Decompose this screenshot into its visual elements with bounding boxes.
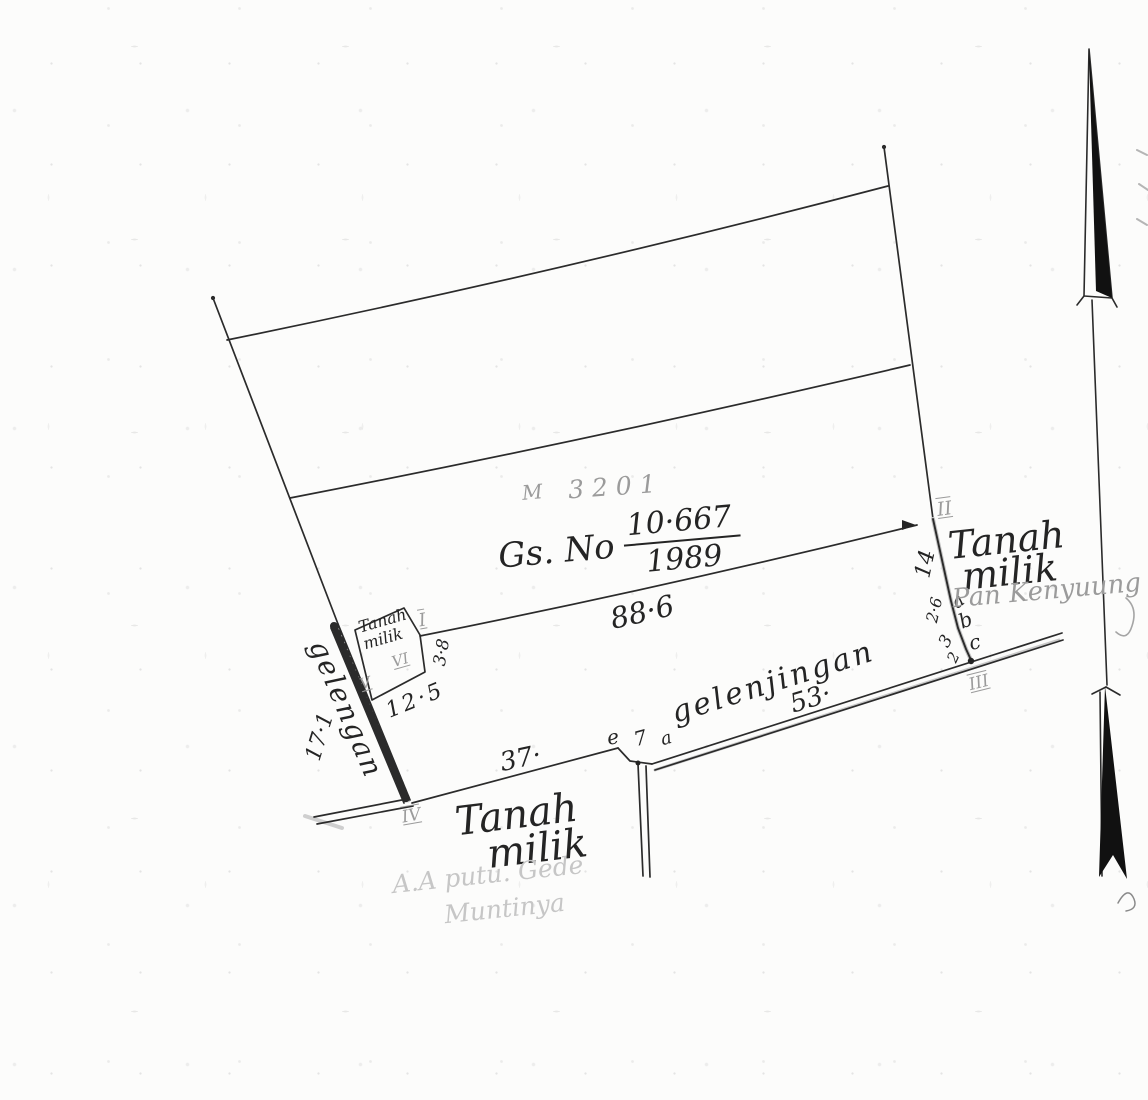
notch-line xyxy=(618,748,652,764)
station-mark-ii: II xyxy=(936,499,954,520)
pencil-flourish-tail xyxy=(1116,598,1134,636)
parcel-number-pencil: 3201 xyxy=(567,471,664,503)
left-road-rail-bottom xyxy=(317,806,413,824)
dimension-box-side: 3·8 xyxy=(432,638,453,668)
gs-number-fraction: 10·667 1989 xyxy=(621,502,743,580)
left-boundary-line xyxy=(213,298,338,624)
top-boundary-line xyxy=(227,186,888,340)
north-arrow-fin-flare-right xyxy=(1106,687,1120,695)
corner-blob-left xyxy=(211,296,215,300)
edge-dash-2 xyxy=(1139,184,1148,190)
station-mark-iv: IV xyxy=(401,806,423,826)
north-arrow-fin-flare-left xyxy=(1092,687,1106,694)
channel-rail-right xyxy=(646,766,650,877)
channel-rail-left xyxy=(638,764,643,876)
edge-dash-1 xyxy=(1137,150,1147,155)
corner-blob-right xyxy=(882,145,886,149)
stray-marks xyxy=(1116,150,1148,911)
gs-title-prefix: Gs. No xyxy=(497,530,616,574)
parcel-boundary xyxy=(211,145,971,660)
point-c-dot xyxy=(968,658,974,664)
right-boundary-line xyxy=(884,147,933,519)
north-arrow-icon xyxy=(1077,49,1127,879)
survey-sheet: M 3201 Gs. No 10·667 1989 88·6 14 2·6 3 … xyxy=(0,0,1148,1100)
dimension-right-segment: 14 xyxy=(912,548,939,580)
north-arrow-base-flare-right xyxy=(1112,298,1117,307)
corner-squiggle xyxy=(1118,893,1135,911)
survey-arrow-tick xyxy=(902,520,916,530)
north-arrow-shaft xyxy=(1092,300,1107,685)
dimension-road-west: 37· xyxy=(498,742,544,776)
left-road-rail-top xyxy=(314,799,407,817)
edge-dash-3 xyxy=(1137,219,1147,225)
pencil-m-label: M xyxy=(521,481,543,503)
bottom-roads xyxy=(305,633,1063,877)
station-mark-vi: VI xyxy=(390,651,410,670)
notch-dot xyxy=(636,761,641,766)
station-mark-iii: III xyxy=(967,673,991,694)
north-arrow-base-flare-left xyxy=(1077,296,1084,305)
north-arrow-fin-fill xyxy=(1099,686,1127,879)
